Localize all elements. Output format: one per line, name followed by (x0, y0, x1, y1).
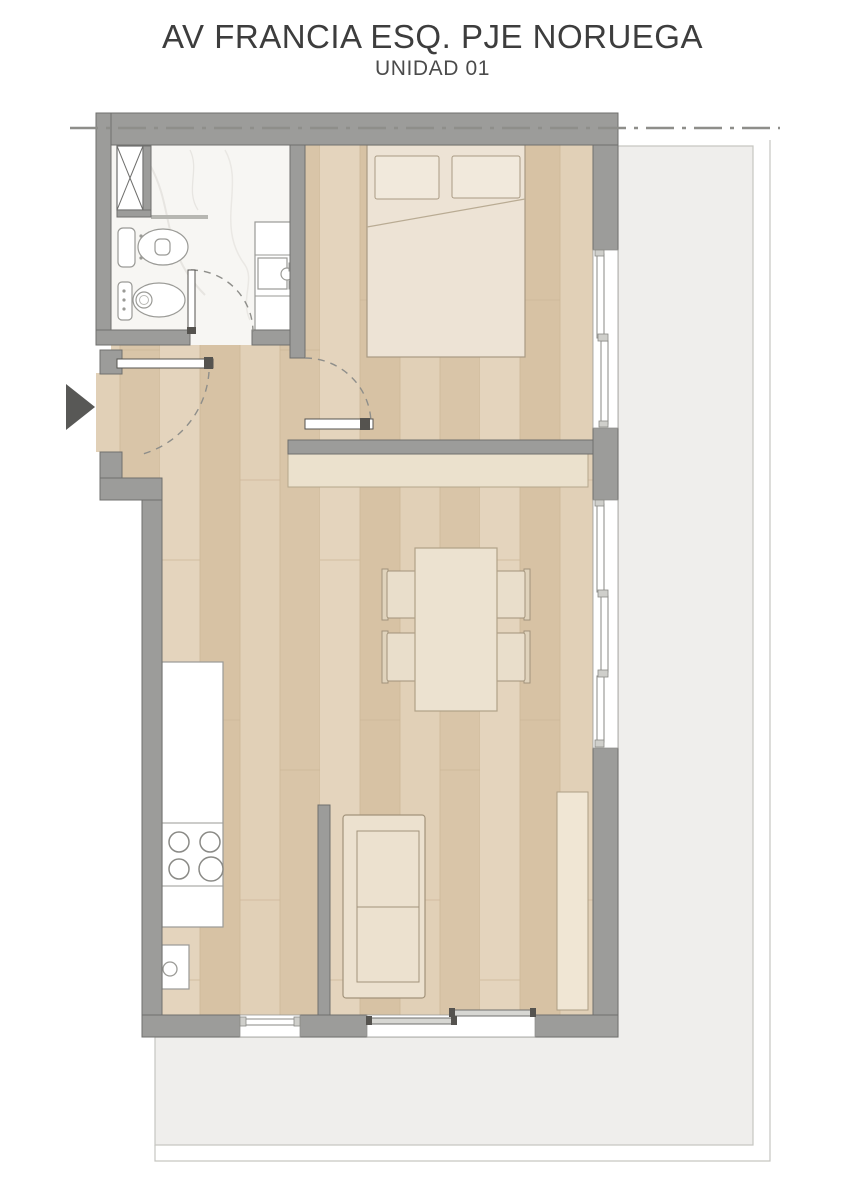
window-rail (601, 341, 608, 424)
toilet-dot (122, 307, 125, 310)
toilet-bowl (133, 283, 185, 317)
panel-cap (451, 1016, 457, 1025)
chair (495, 633, 525, 681)
window-cap (595, 250, 604, 256)
window-cap (240, 1017, 246, 1026)
shaft-duct (117, 146, 143, 210)
double-bed (367, 145, 525, 357)
window-rail (244, 1019, 296, 1025)
page-subtitle: UNIDAD 01 (0, 57, 865, 81)
window-cap (598, 334, 608, 341)
bidet-bowl (138, 229, 188, 265)
panel-cap (449, 1008, 455, 1017)
burner (200, 832, 220, 852)
pillow-left (375, 156, 439, 199)
window-cap (294, 1017, 300, 1026)
burner (199, 857, 223, 881)
window-rail (597, 676, 604, 742)
wall-bottom-middle (300, 1015, 367, 1037)
dining-table (415, 548, 497, 711)
tall-cabinet (557, 792, 588, 1010)
plan-header: AV FRANCIA ESQ. PJE NORUEGA UNIDAD 01 (0, 20, 865, 81)
burner (169, 859, 189, 879)
wall-bottom-left (142, 1015, 240, 1037)
window-cap (595, 740, 604, 747)
wall-left-jog (100, 478, 162, 500)
panel-cap (366, 1016, 372, 1025)
chair (387, 571, 417, 618)
wall-entry-block-lower (100, 452, 122, 478)
floor-plan-page: AV FRANCIA ESQ. PJE NORUEGA UNIDAD 01 (0, 0, 865, 1200)
bidet-dot (139, 256, 142, 259)
window-opening (240, 1015, 300, 1037)
page-title: AV FRANCIA ESQ. PJE NORUEGA (0, 20, 865, 55)
window-cap (599, 421, 608, 427)
floor-plan-svg (0, 0, 865, 1200)
wall-left-lower (142, 500, 162, 1015)
entry-threshold (96, 373, 112, 452)
wall-right-upper (593, 145, 618, 250)
wall-right-middle (593, 428, 618, 500)
window-cap (598, 590, 608, 597)
window-rail (601, 596, 608, 672)
door-leaf (117, 359, 213, 368)
living-room-windows (593, 500, 618, 748)
burner (169, 832, 189, 852)
window-cap (598, 670, 608, 677)
sink-basin (162, 945, 189, 989)
pillow-right (452, 156, 520, 198)
wall-left-upper (96, 113, 111, 345)
door-hinge (360, 418, 370, 430)
bidet (118, 228, 188, 267)
sliding-panel (452, 1010, 533, 1016)
door-hinge (187, 327, 196, 334)
window-rail (597, 254, 604, 338)
sliding-panel (369, 1018, 454, 1024)
wall-bath-bedroom (290, 145, 305, 358)
wall-kitchen-partition (318, 805, 330, 1015)
counter-top (162, 662, 223, 927)
door-hinge (204, 357, 213, 369)
door-leaf (188, 270, 195, 332)
wall-bath-bottom-left (96, 330, 190, 345)
wall-right-lower (593, 748, 618, 1015)
wall-shaft-strip-right (143, 146, 151, 217)
kitchen-sink (162, 945, 189, 989)
window-rail (597, 504, 604, 592)
toilet-dot (122, 289, 125, 292)
panel-cap (530, 1008, 536, 1017)
window-cap (595, 500, 604, 506)
toilet-dot (122, 298, 125, 301)
bedroom-window (593, 250, 618, 428)
bidet-tank (118, 228, 135, 267)
sideboard-shelf (288, 454, 588, 487)
entry-arrow-icon (66, 384, 95, 430)
bidet-dot (139, 234, 142, 237)
chair (387, 633, 417, 681)
chair (495, 571, 525, 618)
sofa (343, 815, 425, 998)
kitchen-window (240, 1015, 300, 1037)
wall-bottom-right (535, 1015, 618, 1037)
wall-bedroom-bottom (288, 440, 600, 454)
shower-screen-line (151, 215, 208, 219)
wall-shaft-strip-bottom (117, 210, 151, 217)
